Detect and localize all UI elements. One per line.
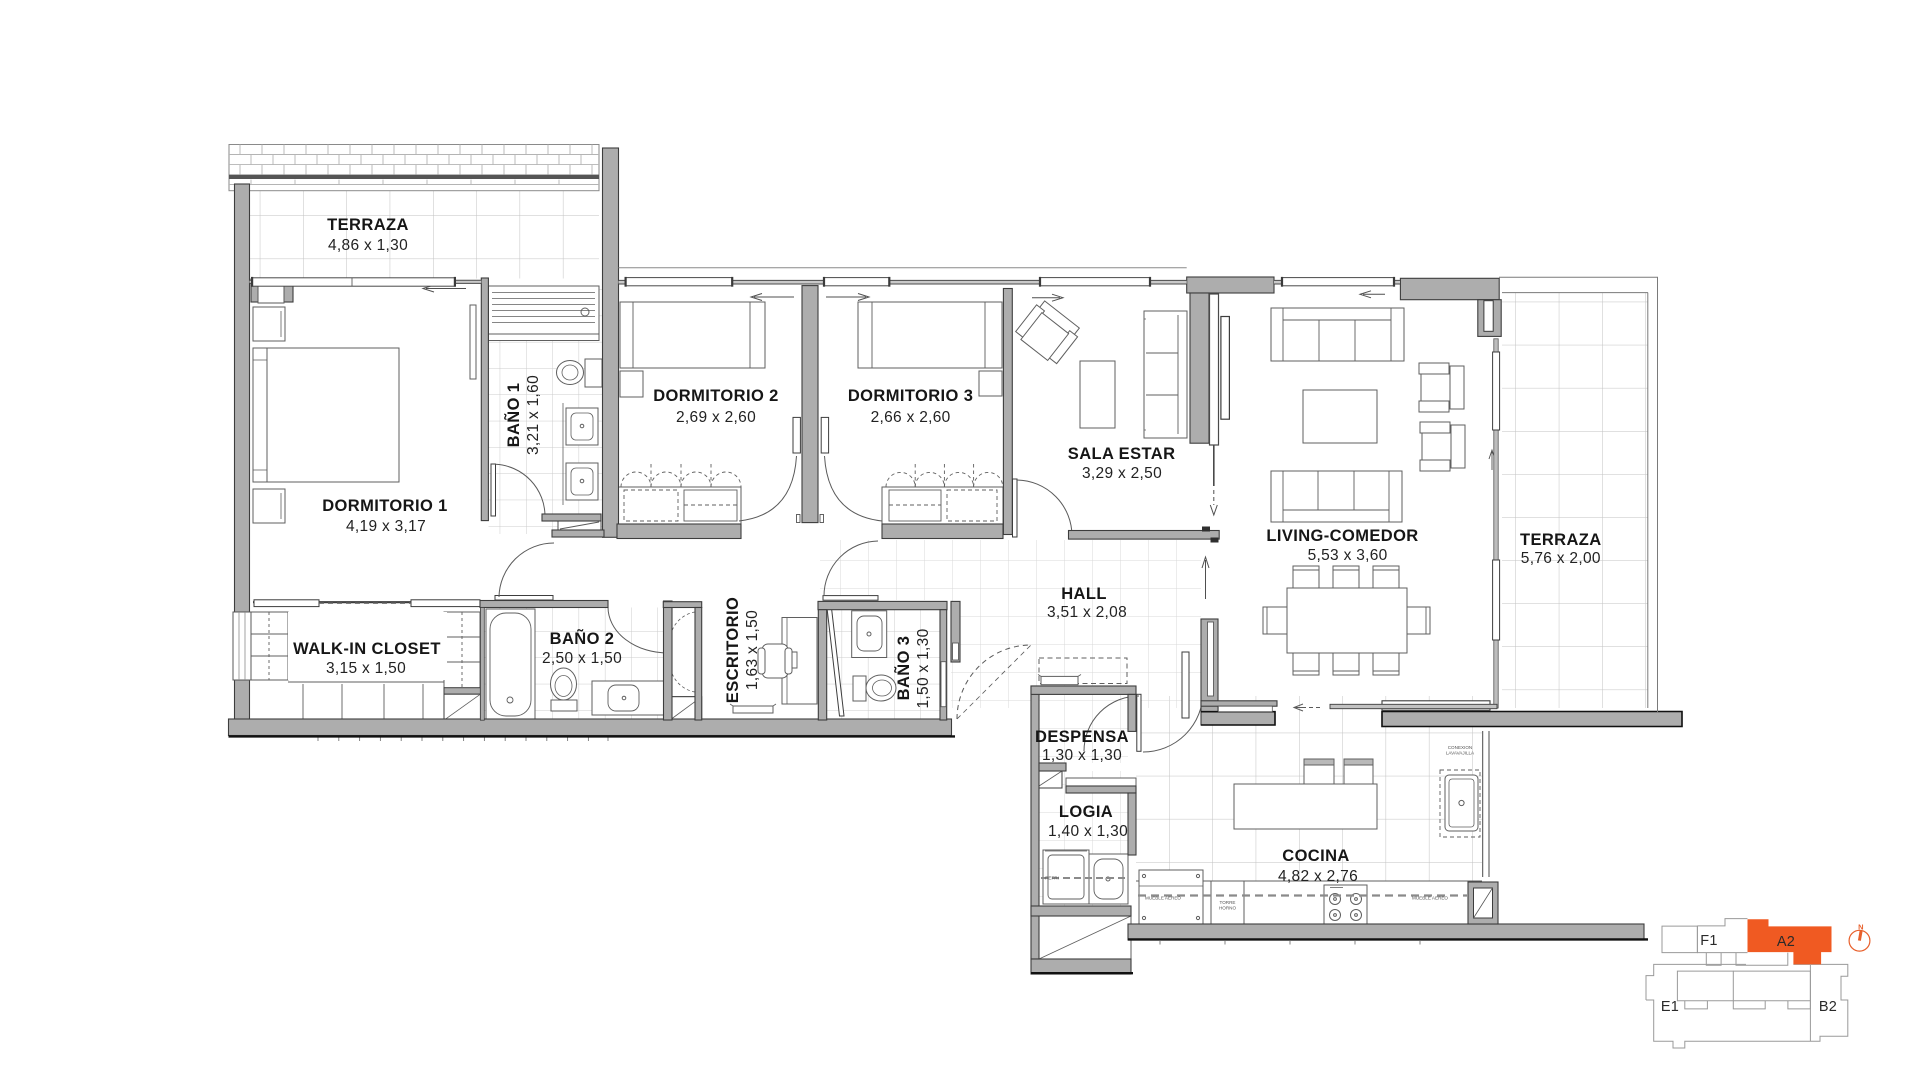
svg-text:DESPENSA: DESPENSA — [1035, 728, 1129, 746]
svg-text:DORMITORIO 3: DORMITORIO 3 — [848, 387, 974, 405]
svg-text:3,15 x 1,50: 3,15 x 1,50 — [326, 660, 406, 677]
svg-text:B2: B2 — [1819, 999, 1837, 1015]
svg-text:TERRAZA: TERRAZA — [1520, 531, 1602, 549]
svg-text:1,63 x 1,50: 1,63 x 1,50 — [744, 610, 761, 690]
svg-text:4,86 x 1,30: 4,86 x 1,30 — [328, 237, 408, 254]
svg-text:2,69 x 2,60: 2,69 x 2,60 — [676, 409, 756, 426]
svg-text:N: N — [1858, 922, 1863, 931]
svg-text:CONEXION: CONEXION — [1448, 745, 1473, 750]
svg-text:4,19 x 3,17: 4,19 x 3,17 — [346, 518, 426, 535]
svg-text:SALA ESTAR: SALA ESTAR — [1068, 445, 1176, 463]
svg-text:COCINA: COCINA — [1282, 847, 1349, 865]
svg-text:TERRAZA: TERRAZA — [327, 216, 409, 234]
svg-text:LAVAVAJILLA: LAVAVAJILLA — [1446, 751, 1475, 756]
svg-text:MUEBLE AEREO: MUEBLE AEREO — [1412, 896, 1448, 901]
svg-text:5,76 x 2,00: 5,76 x 2,00 — [1521, 550, 1601, 567]
svg-text:HALL: HALL — [1061, 585, 1107, 603]
svg-text:A2: A2 — [1777, 934, 1795, 950]
svg-text:BAÑO 1: BAÑO 1 — [503, 383, 523, 448]
svg-text:1,50 x 1,30: 1,50 x 1,30 — [915, 628, 932, 708]
svg-text:3,29 x 2,50: 3,29 x 2,50 — [1082, 465, 1162, 482]
svg-text:1,30 x 1,30: 1,30 x 1,30 — [1042, 747, 1122, 764]
svg-text:3,51 x 2,08: 3,51 x 2,08 — [1047, 604, 1127, 621]
svg-text:2,66 x 2,60: 2,66 x 2,60 — [871, 409, 951, 426]
svg-text:1,40 x 1,30: 1,40 x 1,30 — [1048, 823, 1128, 840]
svg-text:MUEBLE AEREO: MUEBLE AEREO — [1145, 896, 1181, 901]
svg-text:WALK-IN CLOSET: WALK-IN CLOSET — [293, 640, 441, 658]
svg-text:3,21 x 1,60: 3,21 x 1,60 — [525, 375, 542, 455]
svg-text:HORNO: HORNO — [1219, 906, 1237, 911]
svg-text:DORMITORIO 1: DORMITORIO 1 — [322, 497, 448, 515]
svg-text:DORMITORIO 2: DORMITORIO 2 — [653, 387, 779, 405]
svg-text:REFRI: REFRI — [1045, 876, 1059, 881]
svg-text:LIVING-COMEDOR: LIVING-COMEDOR — [1266, 527, 1418, 545]
svg-text:BAÑO 3: BAÑO 3 — [893, 636, 913, 701]
svg-text:BAÑO 2: BAÑO 2 — [550, 628, 615, 648]
svg-text:2,50 x 1,50: 2,50 x 1,50 — [542, 650, 622, 667]
svg-text:LOGIA: LOGIA — [1059, 803, 1113, 821]
svg-text:5,53 x 3,60: 5,53 x 3,60 — [1308, 547, 1388, 564]
svg-text:TORRE: TORRE — [1220, 900, 1236, 905]
svg-text:ESCRITORIO: ESCRITORIO — [724, 597, 742, 703]
svg-text:E1: E1 — [1661, 999, 1679, 1015]
svg-text:F1: F1 — [1700, 933, 1718, 949]
svg-text:4,82 x 2,76: 4,82 x 2,76 — [1278, 868, 1358, 885]
